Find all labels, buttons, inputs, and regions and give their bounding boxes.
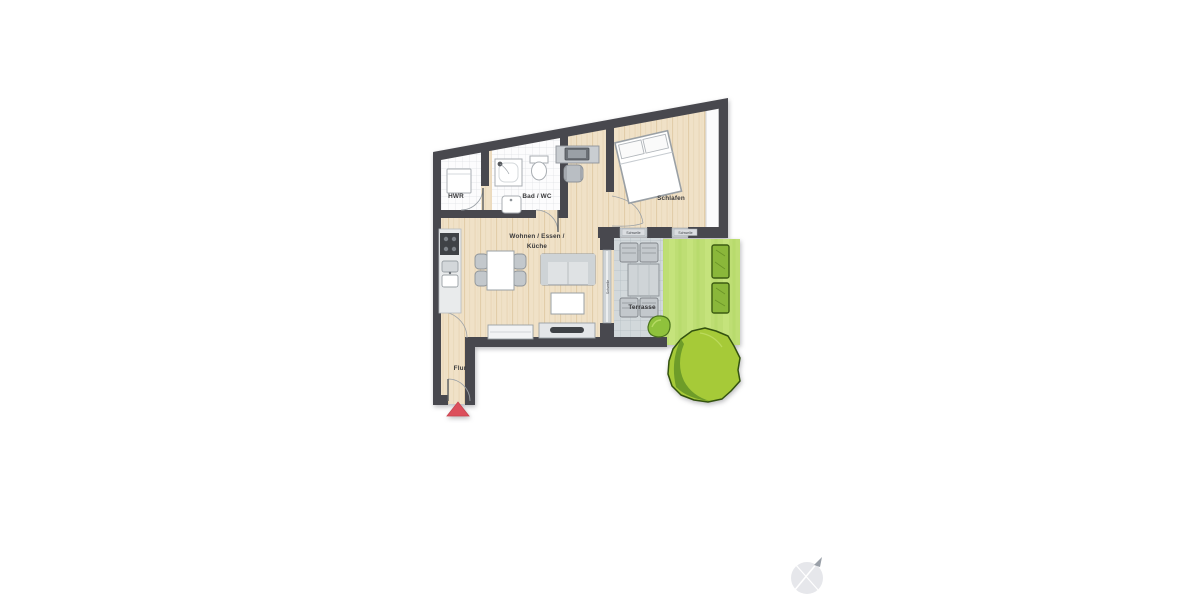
svg-text:Schwelle: Schwelle	[606, 280, 610, 294]
bedroom-kneewall-strip	[706, 107, 718, 228]
north-arrow-compass-icon	[785, 551, 831, 601]
stove	[440, 233, 459, 255]
svg-text:Schwelle: Schwelle	[626, 231, 640, 235]
desk	[556, 146, 599, 163]
label-hwr: HWR	[448, 193, 464, 200]
label-flur: Flur	[454, 365, 467, 372]
label-wohnen-line2: Küche	[527, 243, 548, 250]
terrace-bush	[648, 316, 670, 337]
label-bad-wc: Bad / WC	[522, 193, 551, 200]
label-schlafen: Schlafen	[657, 195, 685, 202]
schwelle-label-terrace-door: Schwelle	[622, 229, 645, 236]
desk-chair	[564, 165, 583, 182]
floor-plan: HWR Bad / WC Schlafen Wohnen / Essen / K…	[415, 75, 755, 423]
sideboard	[488, 325, 533, 339]
schwelle-label-living-door: Schwelle	[606, 280, 610, 294]
washing-machine	[447, 169, 471, 193]
bathroom-sink	[502, 196, 521, 213]
coffee-table	[551, 293, 584, 314]
tv-sideboard	[539, 323, 595, 338]
label-terrasse: Terrasse	[628, 304, 656, 311]
svg-text:Schwelle: Schwelle	[678, 231, 692, 235]
toilet	[530, 156, 548, 180]
terrace-table	[628, 264, 659, 296]
label-wohnen-line1: Wohnen / Essen /	[509, 233, 564, 240]
shower	[495, 159, 522, 186]
schwelle-label-garden-door: Schwelle	[674, 229, 697, 236]
sofa	[541, 254, 595, 285]
